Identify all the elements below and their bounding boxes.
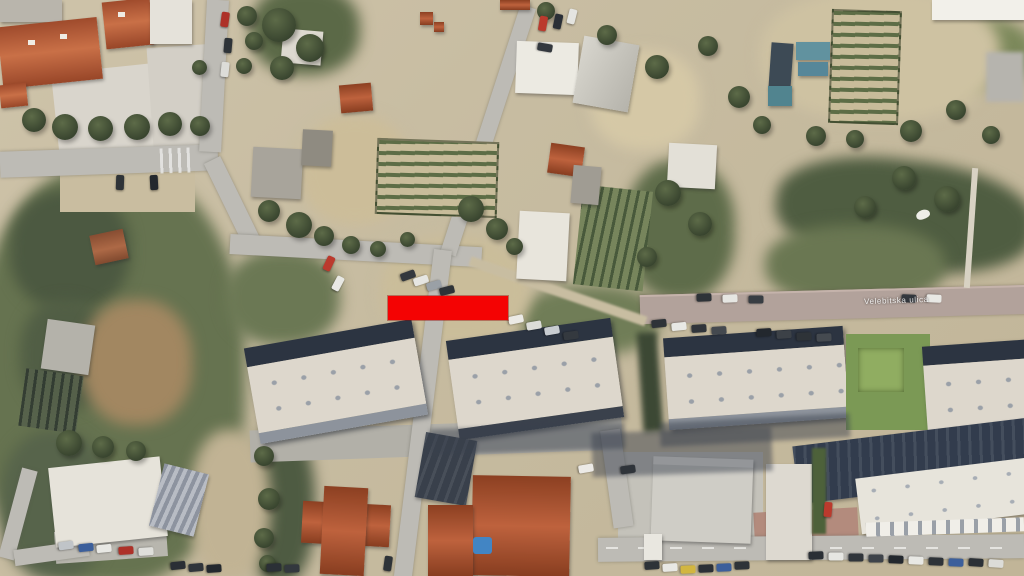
parked-car <box>888 555 903 564</box>
parked-car <box>266 563 281 572</box>
white-building <box>150 0 192 44</box>
parked-car <box>223 38 232 54</box>
parked-car <box>116 175 125 190</box>
parked-car <box>948 558 963 567</box>
tree <box>254 446 274 466</box>
parked-car <box>756 328 772 337</box>
hedge-strip <box>812 448 826 534</box>
parked-car <box>566 8 577 24</box>
parked-car <box>383 556 393 572</box>
tree <box>258 488 280 510</box>
tree <box>158 112 182 136</box>
tree <box>192 60 207 75</box>
parked-car <box>808 551 823 560</box>
dirt-patch <box>82 300 192 425</box>
parked-car <box>188 563 204 572</box>
parked-car <box>206 564 222 573</box>
parked-car <box>138 547 154 556</box>
hangar-roof <box>573 36 640 113</box>
parked-car <box>698 564 713 573</box>
tree <box>126 441 146 461</box>
tree <box>52 114 78 140</box>
tree <box>900 120 922 142</box>
highlight-marker <box>388 296 508 320</box>
tree <box>637 247 657 267</box>
parked-car <box>284 564 299 573</box>
red-roof-complex <box>428 505 473 576</box>
tree <box>688 212 712 236</box>
gray-roof-building <box>0 0 62 22</box>
swimming-pool <box>473 537 492 554</box>
tree <box>655 180 681 206</box>
parked-car <box>671 322 687 332</box>
red-roof-complex <box>320 486 369 576</box>
scrub-patch <box>225 250 340 345</box>
red-roof-shed <box>434 22 444 32</box>
roof-dormer <box>60 34 67 39</box>
playground <box>858 348 904 392</box>
parked-car <box>170 561 186 571</box>
parked-car <box>796 332 811 341</box>
tree <box>92 436 114 458</box>
parked-car <box>849 554 864 562</box>
parked-car <box>96 544 112 554</box>
tree <box>934 186 960 212</box>
tree <box>946 100 966 120</box>
white-building <box>932 0 1024 20</box>
tree <box>286 212 312 238</box>
parked-car <box>908 556 923 565</box>
white-flat-building <box>48 456 168 547</box>
tree <box>88 116 113 141</box>
tree <box>237 6 257 26</box>
red-roof-building <box>102 0 155 49</box>
parked-car <box>150 175 159 190</box>
roof-dormer <box>118 12 125 17</box>
tree <box>22 108 46 132</box>
tree <box>262 8 296 42</box>
parked-car <box>538 15 548 31</box>
tree <box>296 34 324 62</box>
red-roof-complex <box>471 475 571 576</box>
tree <box>698 36 718 56</box>
parked-car <box>691 324 707 333</box>
parked-car <box>696 293 711 302</box>
tree <box>806 126 826 146</box>
parked-car <box>776 330 792 339</box>
crosswalk <box>160 147 191 173</box>
roof-dormer <box>28 40 35 45</box>
greenhouse <box>768 86 792 106</box>
garden-plot <box>828 9 902 125</box>
substation-building <box>41 319 95 375</box>
tree <box>370 241 386 257</box>
tree <box>982 126 1000 144</box>
parked-car <box>968 558 984 567</box>
tree <box>506 238 523 255</box>
red-roof-shed <box>420 12 433 25</box>
substation-grid <box>18 368 84 434</box>
white-shed <box>644 534 662 560</box>
white-house <box>516 211 569 282</box>
tree <box>400 232 415 247</box>
tree <box>458 196 484 222</box>
gray-roof-building <box>251 147 304 200</box>
navy-barn <box>768 42 793 89</box>
parked-car <box>829 553 844 561</box>
red-roof-building <box>0 17 103 89</box>
parked-car <box>220 62 230 78</box>
parked-car <box>118 546 134 555</box>
tree <box>236 58 252 74</box>
tree <box>645 55 669 79</box>
greenhouse <box>796 42 830 60</box>
tree <box>342 236 360 254</box>
red-roof-building <box>0 83 28 109</box>
parked-car <box>662 563 678 572</box>
parked-car <box>749 296 764 304</box>
parked-car <box>220 12 230 28</box>
tree <box>892 166 916 190</box>
gray-roof-building <box>301 129 333 167</box>
gray-shed <box>570 165 601 205</box>
tree <box>486 218 508 240</box>
tree <box>258 200 280 222</box>
tree <box>728 86 750 108</box>
tree <box>753 116 771 134</box>
red-roof-strip <box>500 0 530 10</box>
tree <box>56 430 82 456</box>
parked-car <box>711 326 727 335</box>
greenhouse <box>798 62 828 76</box>
parked-car <box>816 333 831 342</box>
tree <box>254 528 274 548</box>
parked-car <box>869 555 884 563</box>
parked-car <box>716 563 731 572</box>
tree <box>314 226 334 246</box>
parked-car <box>553 13 564 29</box>
tree <box>846 130 864 148</box>
parked-car <box>928 557 943 566</box>
parked-car <box>644 561 660 570</box>
tree <box>854 196 876 218</box>
parked-car <box>78 543 94 553</box>
tree <box>245 32 263 50</box>
tree <box>124 114 150 140</box>
satellite-map: Velebitska ulica <box>0 0 1024 576</box>
tree <box>190 116 210 136</box>
red-roof-house <box>339 83 373 114</box>
tree <box>597 25 617 45</box>
lane-dashes <box>606 547 1020 549</box>
parked-car <box>722 294 737 303</box>
parked-car <box>734 561 749 570</box>
parked-car <box>680 565 695 574</box>
paved-area <box>986 52 1024 102</box>
parked-car <box>988 559 1004 568</box>
tree-line <box>637 331 664 432</box>
white-building <box>766 464 812 560</box>
parked-car <box>823 502 832 518</box>
tree <box>270 56 294 80</box>
parked-car <box>651 319 667 329</box>
